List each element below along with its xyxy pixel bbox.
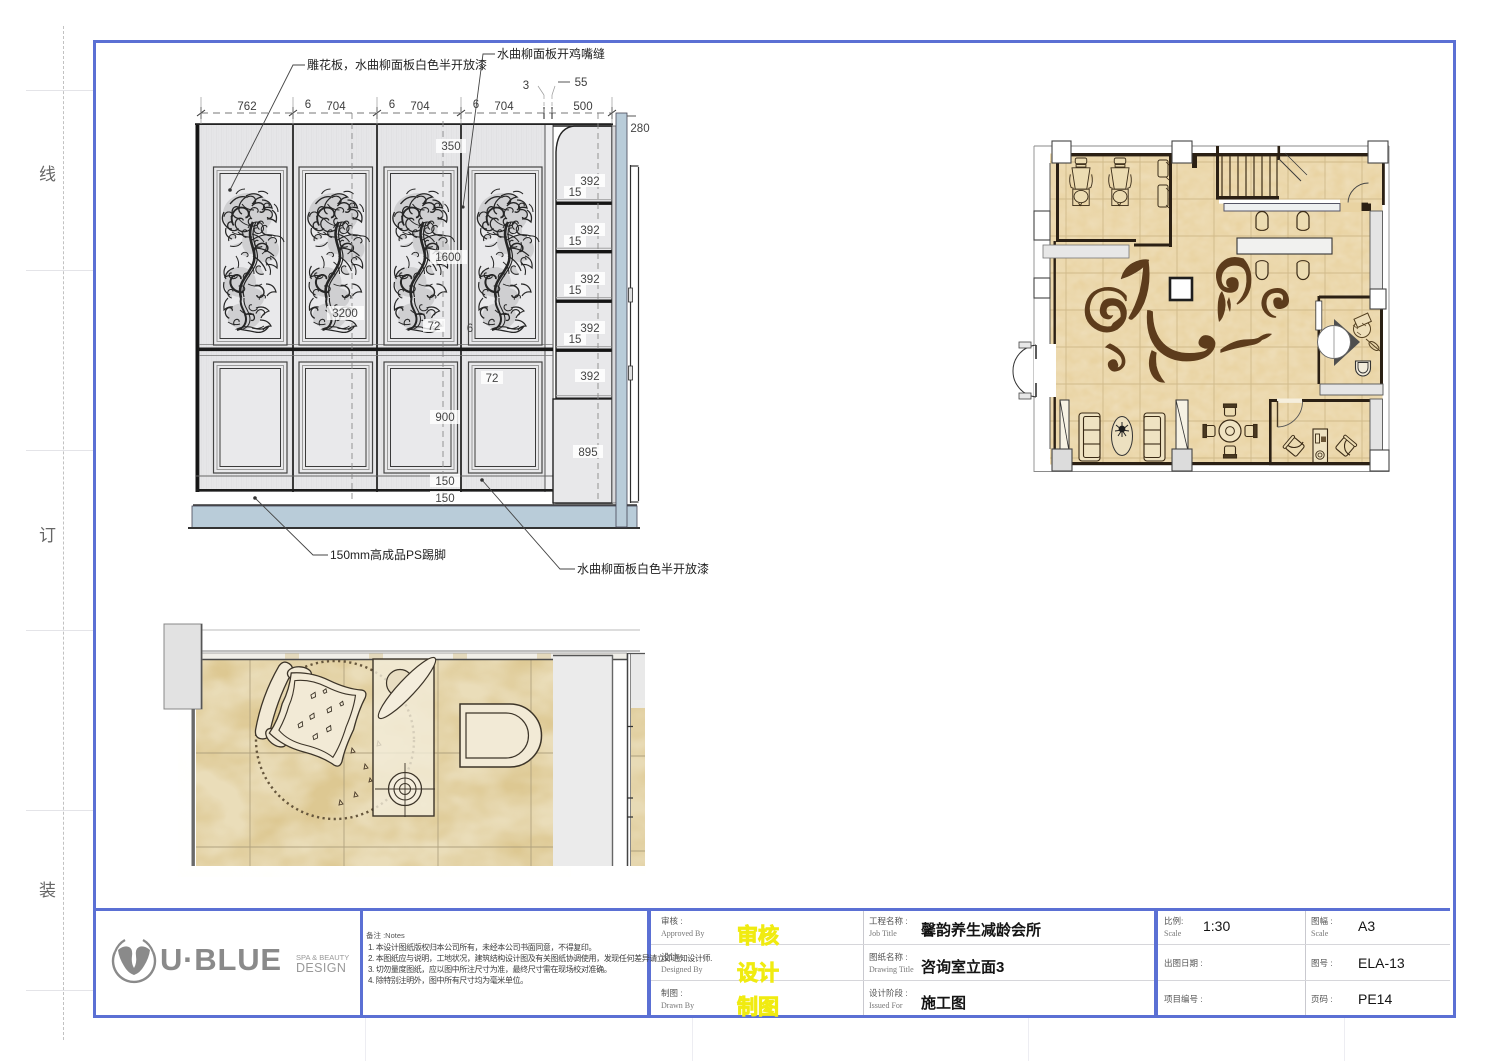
svg-text:3200: 3200 [332, 308, 358, 320]
svg-text:150: 150 [435, 476, 454, 488]
svg-text:762: 762 [237, 101, 256, 113]
svg-text:150mm高成品PS踢脚: 150mm高成品PS踢脚 [330, 547, 446, 562]
svg-text:6: 6 [305, 99, 311, 111]
svg-text:72: 72 [428, 321, 441, 333]
svg-text:900: 900 [435, 412, 454, 424]
svg-text:雕花板，水曲柳面板白色半开放漆: 雕花板，水曲柳面板白色半开放漆 [307, 57, 487, 72]
svg-text:704: 704 [494, 101, 514, 113]
svg-text:15: 15 [569, 236, 582, 248]
svg-text:392: 392 [580, 371, 599, 383]
svg-text:1600: 1600 [435, 252, 461, 264]
svg-text:3: 3 [523, 80, 529, 92]
svg-text:15: 15 [569, 187, 582, 199]
svg-text:350: 350 [441, 141, 460, 153]
svg-text:55: 55 [575, 77, 588, 89]
svg-text:704: 704 [326, 101, 346, 113]
svg-text:15: 15 [569, 334, 582, 346]
svg-text:6: 6 [467, 323, 473, 335]
svg-text:水曲柳面板开鸡嘴缝: 水曲柳面板开鸡嘴缝 [497, 46, 605, 61]
svg-text:895: 895 [578, 447, 597, 459]
svg-text:6: 6 [389, 99, 395, 111]
svg-text:72: 72 [486, 373, 499, 385]
svg-text:280: 280 [630, 123, 649, 135]
svg-text:150: 150 [435, 493, 454, 505]
svg-text:水曲柳面板白色半开放漆: 水曲柳面板白色半开放漆 [577, 561, 709, 576]
svg-text:15: 15 [569, 285, 582, 297]
svg-text:500: 500 [573, 101, 592, 113]
svg-text:704: 704 [410, 101, 430, 113]
